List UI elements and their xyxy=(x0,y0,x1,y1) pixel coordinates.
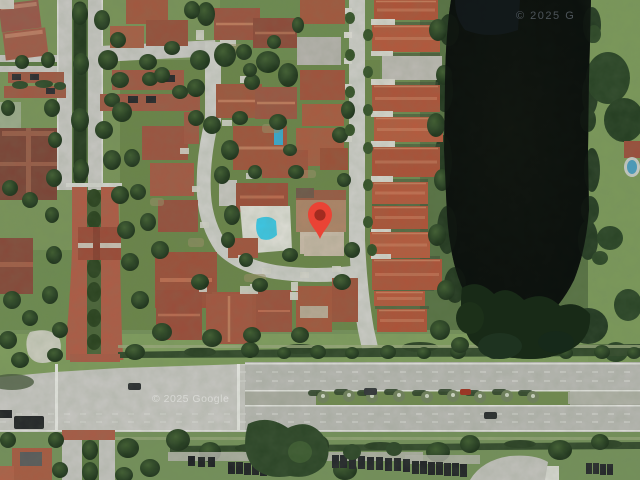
svg-text:© 2025 G: © 2025 G xyxy=(516,10,575,22)
svg-text:© 2025 Google: © 2025 Google xyxy=(152,393,229,405)
